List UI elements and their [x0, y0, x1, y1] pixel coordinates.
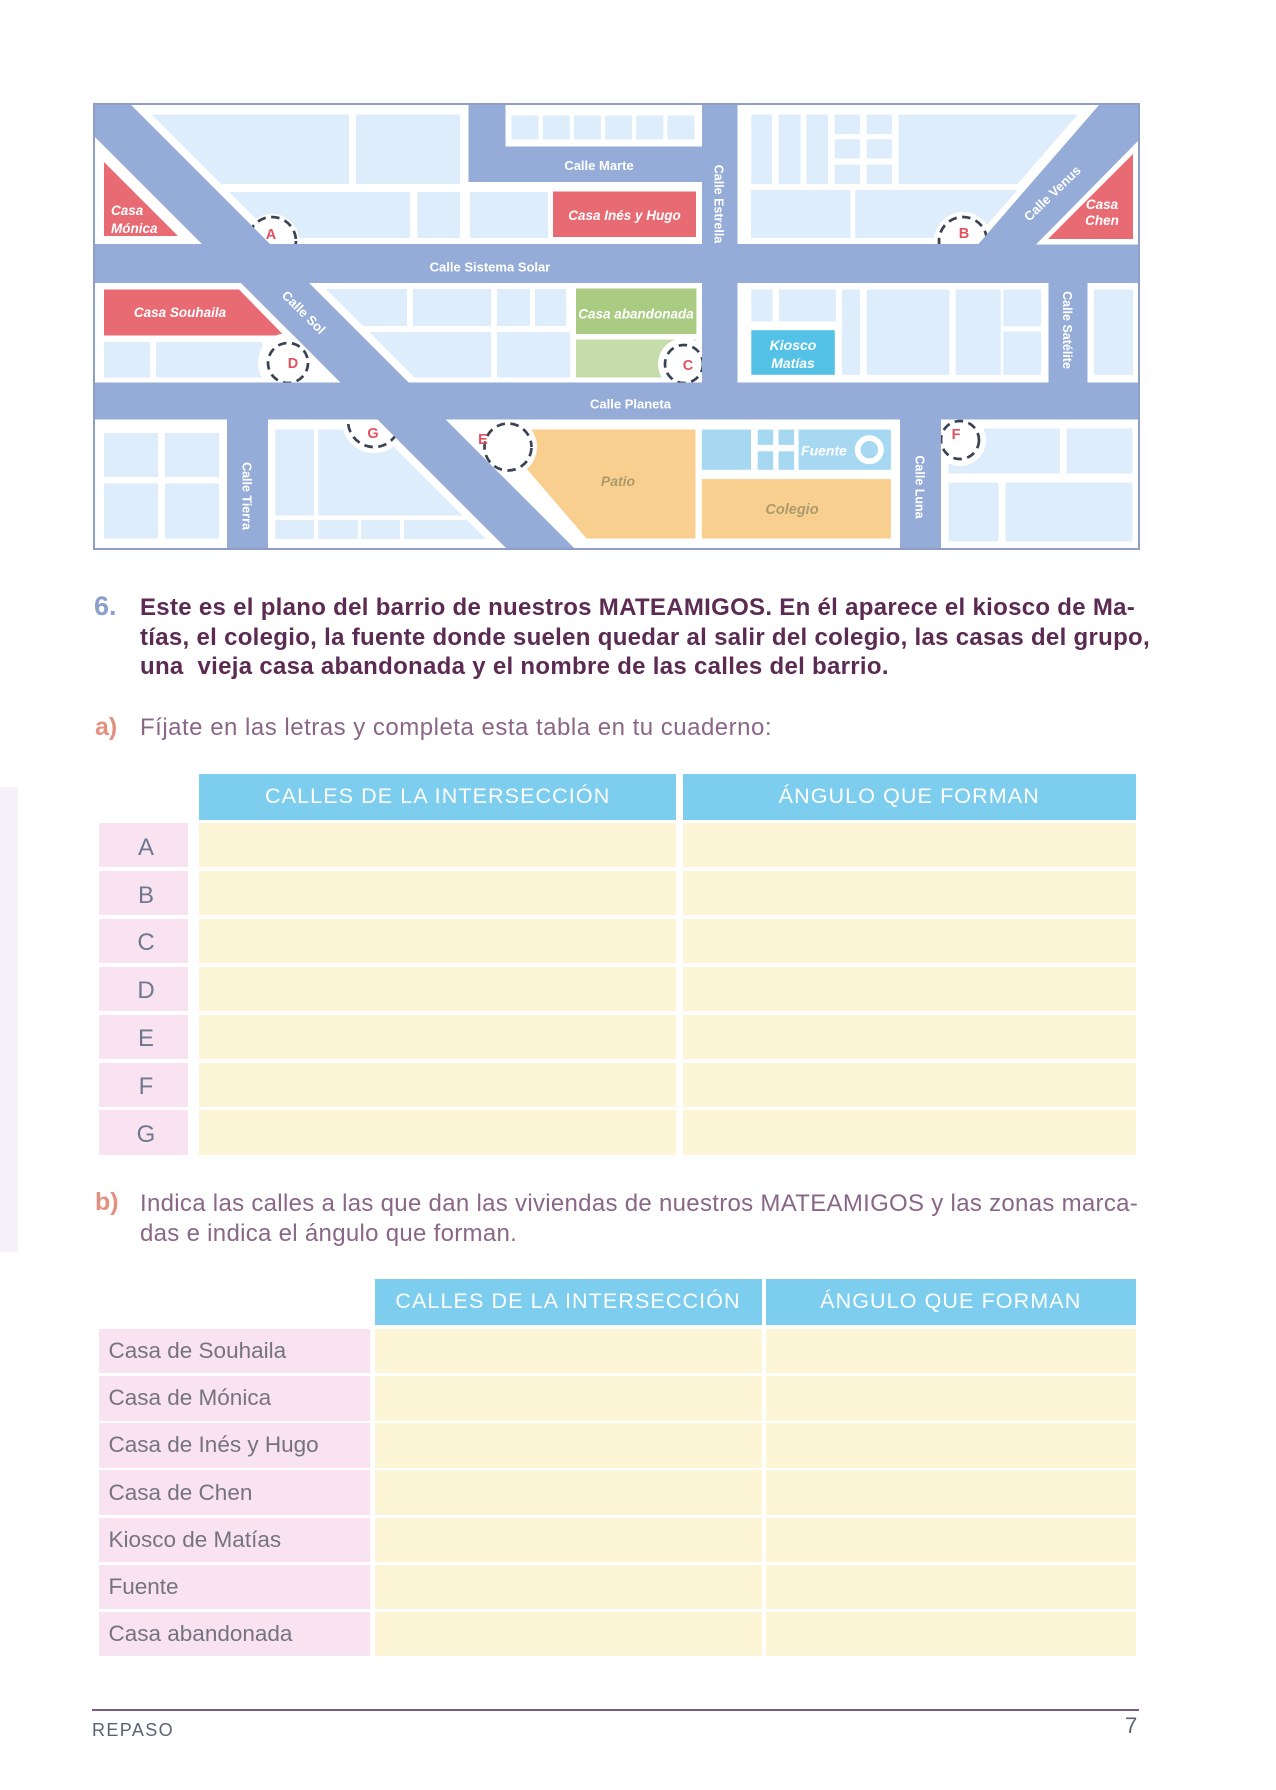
svg-text:C: C: [683, 358, 694, 374]
svg-text:Calle Sistema Solar: Calle Sistema Solar: [430, 260, 551, 275]
svg-text:Casa abandonada: Casa abandonada: [578, 307, 694, 322]
svg-text:Patio: Patio: [601, 473, 636, 489]
svg-text:A: A: [266, 227, 277, 243]
svg-text:E: E: [478, 432, 488, 448]
svg-text:Calle Planeta: Calle Planeta: [590, 397, 672, 412]
svg-text:Casa: Casa: [1086, 197, 1119, 212]
svg-text:D: D: [288, 356, 298, 372]
svg-text:B: B: [959, 226, 969, 242]
svg-text:Casa: Casa: [111, 203, 144, 218]
svg-text:Calle Luna: Calle Luna: [913, 455, 927, 519]
svg-text:Casa Souhaila: Casa Souhaila: [134, 305, 227, 320]
svg-text:G: G: [367, 426, 378, 442]
svg-text:Colegio: Colegio: [765, 502, 818, 518]
svg-text:Calle Satélite: Calle Satélite: [1060, 291, 1074, 369]
svg-text:Chen: Chen: [1085, 213, 1119, 228]
svg-text:F: F: [952, 427, 961, 443]
svg-text:Casa Inés y Hugo: Casa Inés y Hugo: [568, 208, 681, 223]
svg-text:Mónica: Mónica: [111, 221, 158, 236]
svg-text:Kiosco: Kiosco: [770, 337, 817, 353]
svg-text:Matías: Matías: [771, 355, 815, 371]
svg-text:Fuente: Fuente: [801, 443, 847, 459]
svg-text:Calle Marte: Calle Marte: [564, 158, 633, 173]
svg-text:Calle Tierra: Calle Tierra: [240, 462, 254, 531]
svg-text:Calle Estrella: Calle Estrella: [712, 165, 726, 245]
